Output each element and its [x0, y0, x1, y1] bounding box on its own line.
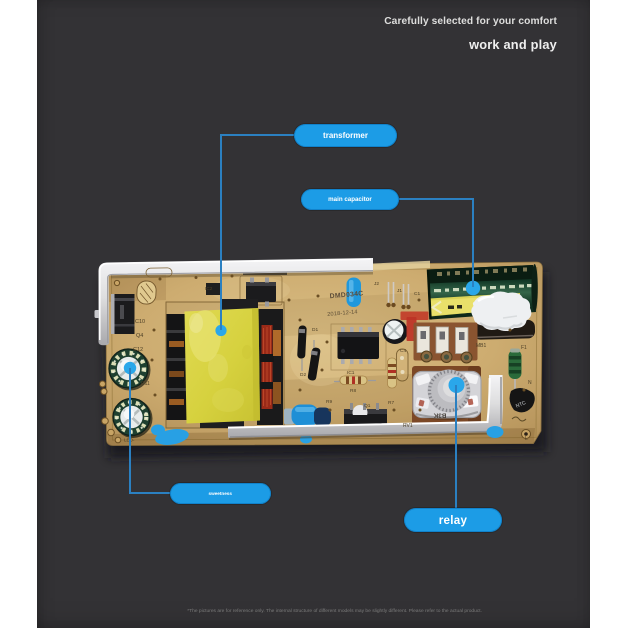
svg-text:F1: F1: [521, 345, 527, 351]
svg-text:R8: R8: [350, 388, 356, 394]
svg-text:D2: D2: [300, 372, 306, 378]
svg-text:Q4: Q4: [136, 333, 143, 339]
svg-text:MB1: MB1: [476, 343, 487, 349]
svg-text:C1: C1: [414, 291, 420, 297]
svg-text:B3K: B3K: [433, 412, 446, 419]
svg-text:L: L: [525, 436, 528, 442]
svg-text:J1: J1: [397, 288, 402, 294]
svg-text:Q1: Q1: [364, 403, 371, 409]
svg-text:C11: C11: [141, 381, 150, 387]
svg-text:RV1: RV1: [403, 423, 413, 429]
svg-text:C12: C12: [133, 347, 143, 353]
svg-text:J2: J2: [374, 281, 379, 287]
svg-text:N: N: [528, 380, 532, 386]
svg-text:C10: C10: [135, 319, 145, 325]
svg-text:IC1: IC1: [347, 370, 355, 376]
svg-text:R9: R9: [326, 399, 332, 405]
svg-text:R7: R7: [388, 400, 394, 406]
svg-text:C4: C4: [400, 348, 406, 354]
svg-text:D1: D1: [312, 327, 318, 333]
svg-text:IC2: IC2: [205, 286, 213, 292]
